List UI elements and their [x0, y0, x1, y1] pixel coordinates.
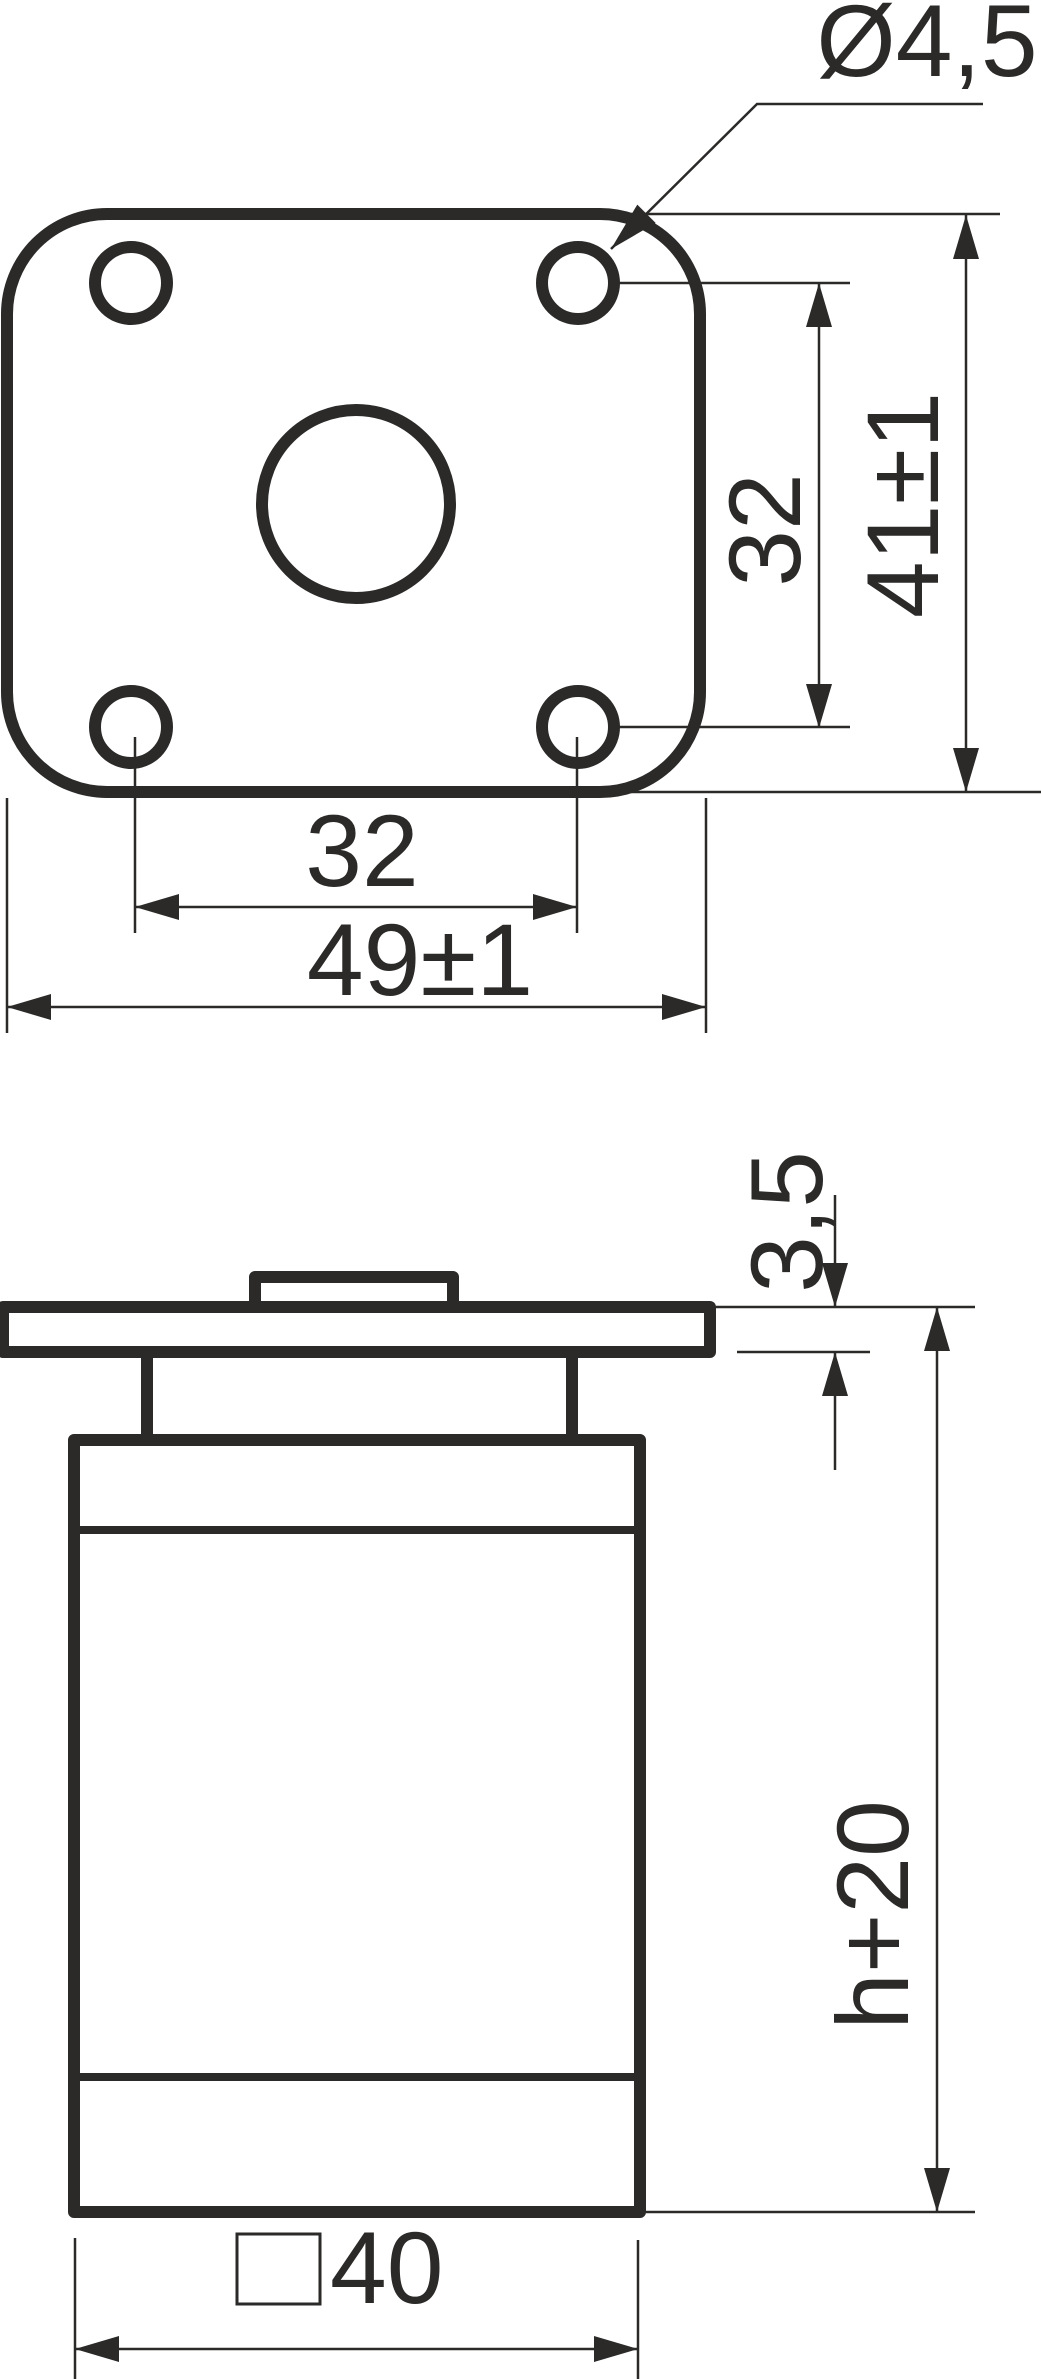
label-section-size: 40	[330, 2211, 443, 2325]
label-flange-thickness: 3,5	[730, 1151, 844, 1293]
side-view	[3, 1277, 710, 2212]
drawing-canvas: Ø4,5 32 41±1 32 49±1 3,5 h+20 40	[0, 0, 1041, 2379]
arrow-plate-depth-bottom	[953, 748, 979, 792]
neck	[147, 1352, 572, 1440]
arrow-plate-width-right	[662, 994, 706, 1020]
leg-body	[74, 1440, 640, 2212]
technical-drawing: Ø4,5 32 41±1 32 49±1 3,5 h+20 40	[0, 0, 1041, 2379]
part-outlines	[3, 214, 710, 2212]
mounting-hole-bottom-left	[95, 691, 167, 763]
label-hole-pitch-vertical: 32	[708, 473, 822, 586]
arrow-hole-pitch-vertical-top	[806, 283, 832, 327]
arrow-hole-pitch-horizontal-right	[533, 894, 577, 920]
label-plate-width: 49±1	[307, 903, 533, 1017]
top-view	[7, 214, 700, 792]
mounting-hole-top-right	[542, 247, 614, 319]
arrow-plate-depth-top	[953, 215, 979, 259]
label-overall-height: h+20	[816, 1800, 930, 2030]
arrow-hole-pitch-horizontal-left	[135, 894, 179, 920]
arrow-section-size-left	[75, 2336, 119, 2362]
arrow-plate-width-left	[7, 994, 51, 1020]
arrow-flange-thickness-bottom	[822, 1352, 848, 1396]
center-hole	[262, 410, 450, 598]
arrow-hole-pitch-vertical-bottom	[806, 684, 832, 728]
plate-outline	[7, 214, 700, 792]
arrow-overall-height-top	[924, 1307, 950, 1351]
label-hole-diameter: Ø4,5	[816, 0, 1037, 98]
label-plate-depth: 41±1	[846, 392, 960, 618]
leader-line-hole-diameter	[611, 104, 983, 249]
arrow-overall-height-bottom	[924, 2168, 950, 2212]
arrow-section-size-right	[594, 2336, 638, 2362]
square-section-icon	[237, 2234, 320, 2304]
seam-lines	[80, 1530, 634, 2077]
flange-plate	[3, 1307, 710, 1352]
mounting-hole-top-left	[95, 247, 167, 319]
label-hole-pitch-horizontal: 32	[305, 794, 418, 908]
